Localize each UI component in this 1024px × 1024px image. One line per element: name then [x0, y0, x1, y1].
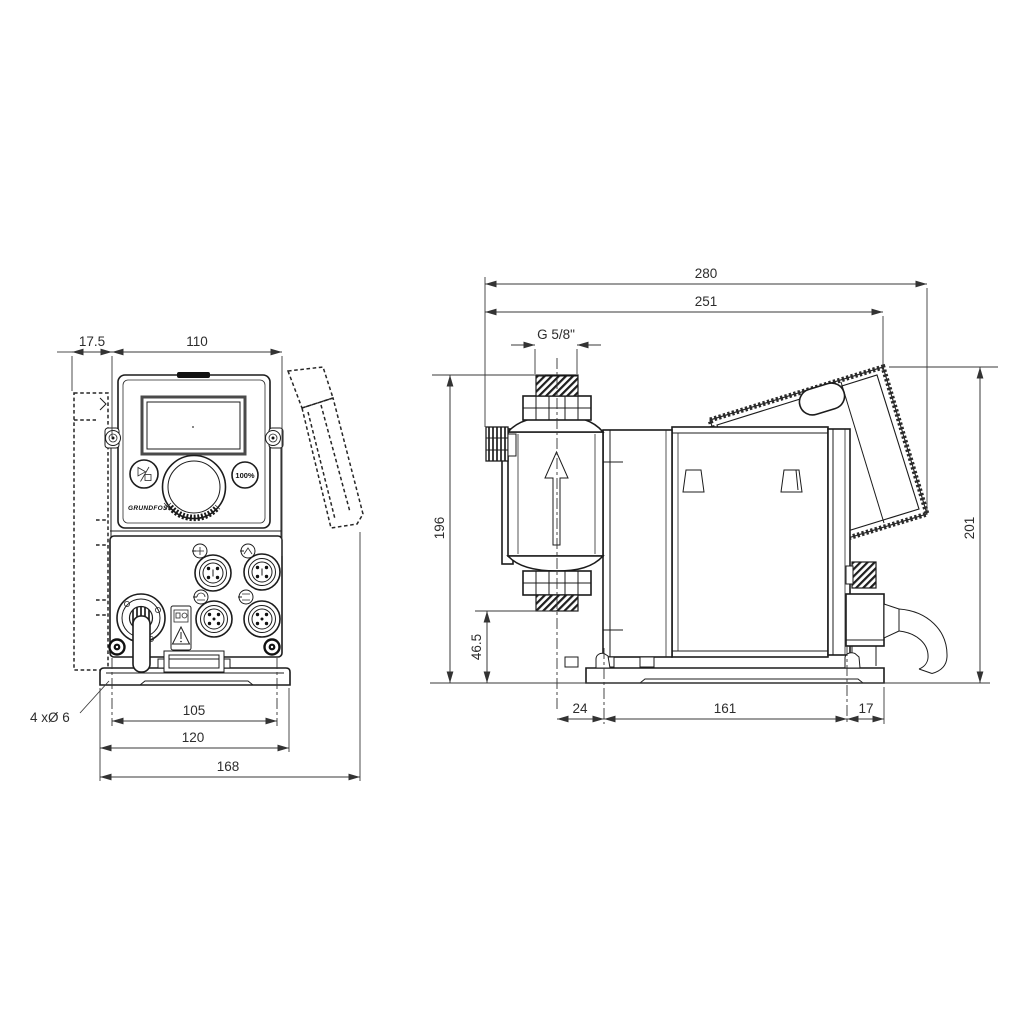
- brand-logo: GRUNDFOS: [128, 503, 171, 512]
- click-wheel[interactable]: [163, 456, 226, 519]
- terminal-box: [846, 594, 884, 646]
- display-screen: [142, 397, 245, 454]
- dim-foot-to-back: 17: [858, 701, 873, 716]
- dim-front-to-foot: 24: [572, 701, 588, 716]
- dim-overall-length: 280: [695, 266, 718, 281]
- dim-overall-height: 201: [962, 517, 977, 540]
- warning-label: [171, 606, 191, 650]
- dim-housing-width: 110: [186, 334, 208, 349]
- capacity-button-label: 100%: [235, 471, 255, 480]
- rear-thread-stud: [852, 562, 876, 588]
- brand-logo-text: GRUNDFOS: [128, 505, 168, 512]
- dimensional-drawing-page: 100% GRUNDFOS: [0, 0, 1024, 1024]
- din-clip: [158, 651, 230, 672]
- housing-screw-bottom-left: [110, 640, 125, 655]
- control-panel: 100% GRUNDFOS: [105, 372, 283, 528]
- top-tab: [177, 372, 210, 378]
- dim-hole-spacing: 105: [183, 703, 206, 718]
- dim-inlet-height: 196: [432, 517, 447, 540]
- connector-top-left[interactable]: [195, 555, 231, 591]
- technical-drawing: 100% GRUNDFOS: [0, 0, 1024, 1024]
- dim-back-offset: 17.5: [79, 334, 105, 349]
- foot-front: [596, 653, 610, 668]
- start-stop-button[interactable]: [130, 460, 158, 488]
- capacity-button[interactable]: 100%: [232, 462, 258, 488]
- connector-bottom-right[interactable]: [244, 601, 280, 637]
- power-cable-front: [133, 616, 150, 672]
- adapter-housing: [603, 430, 672, 657]
- dim-overall-depth: 168: [217, 759, 240, 774]
- connector-bottom-left[interactable]: [196, 601, 232, 637]
- connector-top-right[interactable]: [244, 554, 280, 590]
- dim-thread: G 5/8": [537, 327, 575, 342]
- dim-foot-spacing: 161: [714, 701, 737, 716]
- dim-panel-length: 251: [695, 294, 718, 309]
- dim-plate-width: 120: [182, 730, 205, 745]
- dim-valve-bottom-height: 46.5: [469, 634, 484, 660]
- motor-housing: [672, 427, 850, 657]
- dim-mounting-holes: 4 xØ 6: [30, 710, 70, 725]
- panel-screw-top-left: [105, 428, 121, 448]
- housing-screw-bottom-right: [265, 640, 280, 655]
